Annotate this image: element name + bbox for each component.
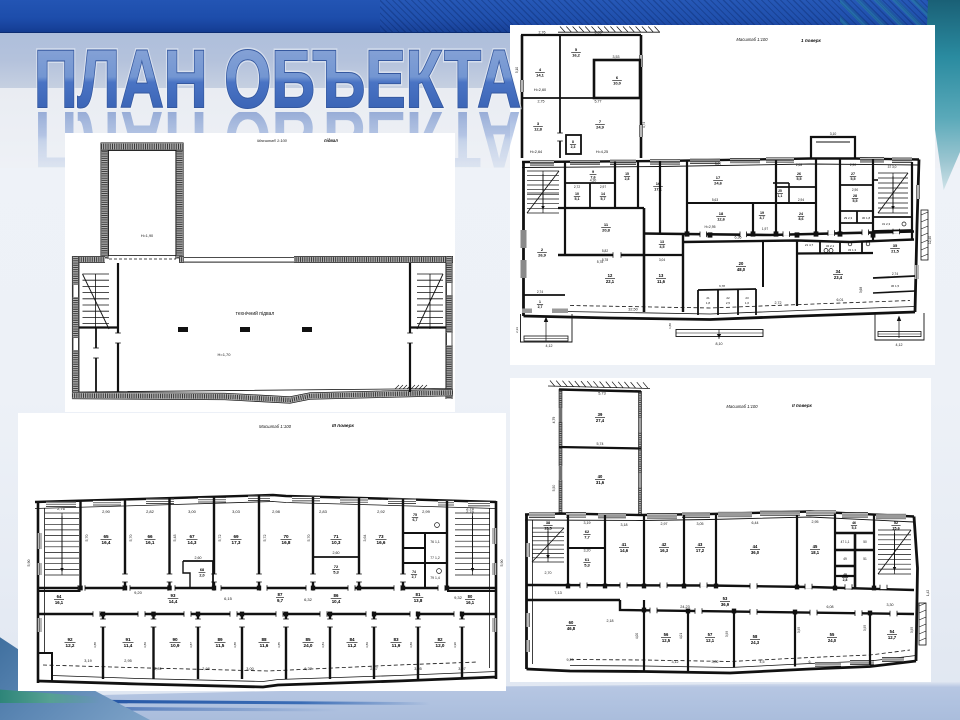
svg-text:3,07: 3,07 — [715, 162, 722, 166]
svg-text:24,0: 24,0 — [304, 643, 313, 648]
svg-text:2,82: 2,82 — [146, 509, 155, 514]
svg-text:12: 12 — [608, 273, 613, 278]
svg-text:45: 45 — [813, 544, 818, 549]
svg-text:15,6: 15,6 — [892, 526, 899, 530]
svg-text:53: 53 — [723, 596, 728, 601]
svg-text:5,5: 5,5 — [797, 177, 802, 181]
svg-text:2,60: 2,60 — [333, 551, 340, 555]
svg-text:4,5: 4,5 — [660, 245, 665, 249]
svg-text:Масштаб 1:100: Масштаб 1:100 — [257, 138, 288, 143]
svg-text:Н=1,90: Н=1,90 — [141, 234, 153, 238]
svg-text:2,8: 2,8 — [625, 177, 630, 181]
svg-text:4,01: 4,01 — [679, 633, 683, 639]
svg-text:13,8: 13,8 — [414, 598, 423, 603]
svg-text:12,5: 12,5 — [662, 638, 671, 643]
svg-text:6,44: 6,44 — [752, 521, 759, 525]
svg-text:11,4: 11,4 — [124, 643, 133, 648]
svg-text:5,70: 5,70 — [307, 535, 311, 542]
svg-text:9,32: 9,32 — [454, 595, 463, 600]
svg-text:36,9: 36,9 — [721, 602, 730, 607]
svg-text:3,85: 3,85 — [277, 642, 281, 648]
svg-text:2,0: 2,0 — [199, 573, 204, 577]
svg-text:21: 21 — [706, 296, 710, 300]
svg-text:83: 83 — [393, 637, 399, 642]
svg-text:12,40: 12,40 — [928, 236, 932, 244]
svg-text:3,00: 3,00 — [188, 509, 197, 514]
svg-text:6,36: 6,36 — [735, 236, 742, 240]
svg-text:3,12: 3,12 — [672, 660, 679, 664]
svg-text:36 1,5: 36 1,5 — [891, 284, 900, 288]
svg-text:72: 72 — [334, 564, 339, 569]
svg-text:51: 51 — [863, 557, 867, 561]
svg-text:14,3: 14,3 — [188, 540, 197, 545]
svg-text:13: 13 — [660, 240, 664, 244]
svg-text:22: 22 — [726, 296, 730, 300]
svg-text:3,99: 3,99 — [725, 631, 729, 637]
svg-text:74: 74 — [412, 570, 416, 574]
svg-text:4,5: 4,5 — [760, 660, 765, 664]
svg-text:5,73: 5,73 — [598, 392, 605, 396]
svg-text:57: 57 — [708, 632, 713, 637]
svg-text:2,70: 2,70 — [545, 571, 552, 575]
svg-text:91: 91 — [125, 637, 131, 642]
svg-text:1: 1 — [539, 300, 541, 304]
svg-text:3,88: 3,88 — [233, 642, 237, 648]
svg-text:16,1: 16,1 — [466, 600, 475, 605]
svg-text:24,9: 24,9 — [596, 125, 605, 130]
svg-text:1,8: 1,8 — [706, 301, 711, 305]
svg-text:48,0: 48,0 — [737, 267, 746, 272]
svg-text:81: 81 — [416, 592, 421, 597]
svg-text:48: 48 — [843, 573, 847, 577]
svg-text:54: 54 — [890, 629, 895, 634]
svg-text:12,7: 12,7 — [888, 635, 897, 640]
svg-text:4,12: 4,12 — [896, 343, 903, 347]
svg-text:4,7: 4,7 — [760, 216, 765, 220]
svg-text:3,87: 3,87 — [189, 642, 193, 648]
svg-text:23: 23 — [745, 296, 749, 300]
svg-text:3,64: 3,64 — [363, 535, 367, 542]
svg-text:89: 89 — [217, 637, 223, 642]
svg-text:24,6: 24,6 — [714, 181, 723, 186]
svg-text:32 2,1: 32 2,1 — [826, 244, 835, 248]
svg-text:23,4: 23,4 — [834, 275, 843, 280]
svg-text:2,7: 2,7 — [538, 305, 543, 309]
svg-text:68: 68 — [200, 568, 204, 572]
svg-text:24,3: 24,3 — [751, 640, 760, 645]
svg-text:технічний підвал: технічний підвал — [236, 310, 275, 317]
svg-text:3,02: 3,02 — [712, 660, 719, 664]
svg-text:2,95: 2,95 — [812, 520, 819, 524]
svg-text:5,1: 5,1 — [575, 197, 580, 201]
svg-text:3,95: 3,95 — [797, 627, 801, 633]
svg-text:52: 52 — [894, 521, 898, 525]
svg-text:18,1: 18,1 — [811, 550, 820, 555]
svg-text:37 3,0: 37 3,0 — [888, 165, 897, 169]
svg-text:85: 85 — [305, 637, 311, 642]
svg-text:2,74: 2,74 — [537, 290, 543, 294]
svg-text:46,8: 46,8 — [567, 626, 576, 631]
svg-text:2,68: 2,68 — [796, 163, 802, 167]
svg-text:2,8: 2,8 — [843, 578, 848, 582]
svg-text:5,90: 5,90 — [500, 560, 504, 567]
svg-text:17,3: 17,3 — [232, 540, 241, 545]
svg-text:2,92: 2,92 — [377, 509, 386, 514]
svg-text:3,90: 3,90 — [453, 642, 457, 648]
svg-text:80: 80 — [468, 594, 473, 599]
svg-text:40: 40 — [598, 474, 603, 479]
svg-text:3,00: 3,00 — [246, 667, 253, 671]
svg-text:69: 69 — [233, 534, 239, 539]
svg-text:2,97: 2,97 — [600, 185, 606, 189]
svg-text:17,2: 17,2 — [696, 548, 705, 553]
svg-text:3,95: 3,95 — [863, 625, 867, 631]
svg-text:42: 42 — [662, 542, 667, 547]
svg-text:17: 17 — [716, 175, 721, 180]
svg-text:3,20: 3,20 — [584, 549, 591, 553]
svg-text:3,89: 3,89 — [365, 642, 369, 648]
svg-text:39: 39 — [598, 412, 603, 417]
svg-text:12,6: 12,6 — [717, 217, 726, 222]
svg-text:9,23: 9,23 — [567, 658, 574, 662]
svg-text:35: 35 — [893, 243, 898, 248]
svg-text:3,30: 3,30 — [887, 603, 894, 607]
svg-text:17,1: 17,1 — [654, 187, 663, 192]
svg-text:38: 38 — [546, 521, 550, 525]
svg-text:2,33: 2,33 — [515, 327, 519, 333]
svg-text:36,0: 36,0 — [751, 550, 760, 555]
svg-text:8,10: 8,10 — [716, 342, 723, 346]
svg-text:43: 43 — [698, 542, 703, 547]
svg-text:62: 62 — [585, 529, 590, 534]
svg-text:1,80: 1,80 — [668, 323, 672, 329]
svg-text:16,2: 16,2 — [572, 53, 581, 58]
svg-text:84: 84 — [349, 637, 355, 642]
svg-text:5,83: 5,83 — [595, 31, 602, 35]
svg-text:56: 56 — [664, 632, 669, 637]
svg-text:5,70: 5,70 — [85, 535, 89, 542]
svg-text:16,1: 16,1 — [55, 600, 64, 605]
svg-text:III поверх: III поверх — [332, 423, 354, 429]
svg-text:3,89: 3,89 — [143, 642, 147, 648]
svg-text:1 поверх: 1 поверх — [801, 38, 821, 43]
svg-text:3,05: 3,05 — [414, 667, 421, 671]
svg-text:5,5: 5,5 — [853, 199, 858, 203]
svg-text:1,42: 1,42 — [926, 590, 930, 596]
svg-text:12,0: 12,0 — [436, 643, 445, 648]
svg-text:8: 8 — [572, 140, 574, 144]
svg-text:65: 65 — [103, 534, 109, 539]
svg-text:75: 75 — [413, 513, 417, 517]
svg-text:30 1,8: 30 1,8 — [862, 216, 871, 220]
svg-text:77 1,2: 77 1,2 — [430, 556, 440, 560]
svg-text:4,30: 4,30 — [590, 179, 597, 183]
svg-text:64: 64 — [57, 594, 62, 599]
svg-text:2,90: 2,90 — [852, 188, 858, 192]
svg-text:61: 61 — [585, 557, 590, 562]
svg-text:3,18: 3,18 — [621, 523, 628, 527]
svg-text:9,7: 9,7 — [277, 598, 284, 603]
svg-text:7: 7 — [599, 119, 602, 124]
svg-text:25: 25 — [778, 189, 782, 193]
svg-text:5: 5 — [575, 47, 578, 52]
svg-text:II поверх: II поверх — [792, 403, 812, 408]
svg-text:5,3: 5,3 — [584, 563, 590, 568]
svg-text:10,3: 10,3 — [332, 540, 341, 545]
svg-text:3,89: 3,89 — [409, 642, 413, 648]
svg-text:9: 9 — [592, 170, 594, 174]
svg-text:2,72: 2,72 — [775, 301, 782, 305]
svg-text:32,50: 32,50 — [628, 308, 638, 312]
svg-text:24,23: 24,23 — [680, 605, 690, 609]
svg-text:6: 6 — [616, 75, 619, 80]
svg-text:підвал: підвал — [324, 138, 338, 143]
svg-text:6,08: 6,08 — [827, 605, 834, 609]
svg-text:7,7: 7,7 — [584, 535, 590, 540]
svg-text:6,32: 6,32 — [304, 597, 313, 602]
svg-text:2,60: 2,60 — [195, 556, 202, 560]
svg-text:5,3: 5,3 — [333, 570, 339, 575]
svg-text:2,98: 2,98 — [202, 667, 209, 671]
svg-text:58: 58 — [753, 634, 758, 639]
svg-text:24: 24 — [799, 212, 803, 216]
svg-text:5,72: 5,72 — [263, 535, 267, 542]
svg-text:5,74: 5,74 — [597, 442, 604, 446]
svg-text:5,90: 5,90 — [27, 560, 31, 567]
svg-text:3,53: 3,53 — [613, 55, 620, 59]
svg-text:2,74: 2,74 — [892, 272, 898, 276]
svg-text:11,6: 11,6 — [260, 643, 269, 648]
svg-text:79 1,4: 79 1,4 — [430, 576, 440, 580]
svg-text:3,68: 3,68 — [859, 287, 863, 293]
svg-text:3,04: 3,04 — [659, 258, 665, 262]
svg-text:11,2: 11,2 — [348, 643, 357, 648]
svg-text:4,00: 4,00 — [635, 633, 639, 639]
svg-text:50: 50 — [863, 540, 867, 544]
svg-text:15,5: 15,5 — [544, 526, 551, 530]
svg-text:18: 18 — [719, 211, 724, 216]
svg-text:33 1,3: 33 1,3 — [848, 248, 857, 252]
svg-text:13: 13 — [659, 273, 664, 278]
svg-text:66: 66 — [147, 534, 153, 539]
svg-text:ПЛАН ОБЪЕКТА: ПЛАН ОБЪЕКТА — [34, 34, 521, 125]
svg-text:88: 88 — [261, 637, 267, 642]
svg-text:71: 71 — [333, 534, 339, 539]
svg-text:2,97: 2,97 — [661, 522, 668, 526]
svg-text:55: 55 — [830, 632, 835, 637]
svg-text:31,6: 31,6 — [596, 480, 605, 485]
svg-text:5,63: 5,63 — [712, 198, 718, 202]
svg-text:Масштаб 1:100: Масштаб 1:100 — [726, 404, 758, 409]
svg-text:21,5: 21,5 — [891, 249, 900, 254]
svg-text:12,1: 12,1 — [706, 638, 715, 643]
svg-text:2,18: 2,18 — [607, 619, 614, 623]
svg-text:3,19: 3,19 — [84, 659, 91, 663]
svg-text:3,03: 3,03 — [232, 509, 241, 514]
svg-text:76 1,1: 76 1,1 — [430, 540, 440, 544]
svg-text:Масштаб 1:100: Масштаб 1:100 — [736, 37, 768, 42]
svg-text:26,9: 26,9 — [538, 253, 547, 258]
svg-text:4,12: 4,12 — [546, 344, 553, 348]
svg-text:15: 15 — [625, 172, 629, 176]
svg-text:82: 82 — [437, 637, 443, 642]
svg-text:2,76: 2,76 — [57, 506, 66, 511]
svg-text:28: 28 — [853, 194, 857, 198]
svg-text:10: 10 — [575, 192, 579, 196]
svg-text:16,1: 16,1 — [146, 540, 155, 545]
svg-text:5,5: 5,5 — [851, 177, 856, 181]
svg-text:34: 34 — [836, 269, 841, 274]
svg-text:2,94: 2,94 — [798, 198, 804, 202]
svg-text:2,72: 2,72 — [574, 185, 580, 189]
svg-text:5,50: 5,50 — [552, 485, 556, 492]
svg-text:3,10: 3,10 — [830, 132, 837, 136]
svg-text:2,76: 2,76 — [466, 509, 475, 514]
svg-text:20: 20 — [739, 261, 744, 266]
svg-text:6,27: 6,27 — [304, 667, 311, 671]
svg-text:2,95: 2,95 — [124, 659, 131, 663]
svg-text:16,3: 16,3 — [660, 548, 669, 553]
svg-text:2,5: 2,5 — [726, 301, 731, 305]
svg-text:Н=4,25: Н=4,25 — [596, 150, 608, 154]
svg-text:6,78: 6,78 — [719, 284, 725, 288]
svg-text:14: 14 — [601, 192, 605, 196]
svg-text:1,97: 1,97 — [762, 227, 768, 231]
svg-text:5,3: 5,3 — [852, 526, 857, 530]
svg-text:1,1: 1,1 — [778, 194, 783, 198]
svg-text:2,98: 2,98 — [272, 509, 281, 514]
svg-text:93: 93 — [171, 593, 176, 598]
svg-text:5,48: 5,48 — [173, 535, 177, 542]
svg-text:3,05: 3,05 — [697, 522, 704, 526]
svg-text:16,8: 16,8 — [282, 540, 291, 545]
svg-text:11,6: 11,6 — [657, 279, 666, 284]
svg-text:24,0: 24,0 — [828, 638, 837, 643]
svg-text:70: 70 — [283, 534, 289, 539]
svg-text:1,6: 1,6 — [745, 301, 750, 305]
svg-text:Н=2,95: Н=2,95 — [704, 225, 715, 229]
svg-text:67: 67 — [189, 534, 195, 539]
svg-text:5,77: 5,77 — [595, 100, 602, 104]
svg-text:11,5: 11,5 — [216, 643, 225, 648]
svg-text:21 4,7: 21 4,7 — [805, 243, 814, 247]
svg-text:22,1: 22,1 — [606, 279, 615, 284]
svg-text:3,07: 3,07 — [458, 667, 465, 671]
svg-text:9,20: 9,20 — [134, 590, 143, 595]
svg-text:3,95: 3,95 — [910, 627, 914, 633]
svg-text:60: 60 — [569, 620, 574, 625]
svg-text:92: 92 — [67, 637, 73, 642]
svg-text:2,3: 2,3 — [571, 145, 576, 149]
svg-text:6,15: 6,15 — [224, 596, 233, 601]
svg-text:4,79: 4,79 — [552, 417, 556, 424]
svg-text:7,13: 7,13 — [554, 591, 561, 595]
svg-text:16: 16 — [656, 181, 661, 186]
svg-text:86: 86 — [334, 593, 339, 598]
svg-text:10,9: 10,9 — [171, 643, 180, 648]
svg-text:10,0: 10,0 — [613, 81, 622, 86]
svg-text:16,4: 16,4 — [102, 540, 111, 545]
svg-text:31 2,3: 31 2,3 — [882, 222, 891, 226]
svg-text:2,90: 2,90 — [102, 509, 111, 514]
svg-text:20,8: 20,8 — [602, 228, 611, 233]
svg-text:2,99: 2,99 — [422, 509, 431, 514]
svg-text:29 2,3: 29 2,3 — [844, 216, 853, 220]
svg-text:3,19: 3,19 — [584, 521, 591, 525]
svg-text:5,82: 5,82 — [602, 249, 608, 253]
svg-text:6,01: 6,01 — [837, 298, 844, 302]
svg-text:8,6: 8,6 — [799, 217, 804, 221]
svg-text:19: 19 — [760, 211, 764, 215]
svg-text:6,: 6, — [809, 660, 812, 664]
svg-text:27: 27 — [851, 172, 855, 176]
svg-text:16,6: 16,6 — [377, 540, 386, 545]
svg-text:46: 46 — [852, 521, 856, 525]
svg-text:5,72: 5,72 — [218, 535, 222, 542]
svg-text:49: 49 — [843, 557, 847, 561]
svg-text:14,6: 14,6 — [620, 548, 629, 553]
svg-text:90: 90 — [172, 637, 178, 642]
svg-text:Н=1,70: Н=1,70 — [217, 352, 231, 357]
svg-text:4,74: 4,74 — [642, 122, 646, 128]
svg-text:2,83: 2,83 — [319, 509, 328, 514]
svg-text:47 1,1: 47 1,1 — [841, 540, 850, 544]
svg-text:3,83: 3,83 — [321, 642, 325, 648]
svg-text:11,9: 11,9 — [392, 643, 401, 648]
svg-text:5,7: 5,7 — [601, 197, 606, 201]
svg-text:3,88: 3,88 — [93, 642, 97, 648]
svg-text:2,7: 2,7 — [412, 575, 417, 579]
svg-text:5,70: 5,70 — [129, 535, 133, 542]
svg-text:27,4: 27,4 — [596, 418, 605, 423]
svg-text:5,78: 5,78 — [597, 260, 604, 264]
svg-text:2,87: 2,87 — [370, 667, 377, 671]
svg-text:10,4: 10,4 — [332, 599, 341, 604]
svg-text:41: 41 — [622, 542, 627, 547]
svg-text:6,7: 6,7 — [413, 518, 418, 522]
svg-text:14,4: 14,4 — [169, 599, 178, 604]
svg-text:44: 44 — [753, 544, 758, 549]
svg-text:73: 73 — [378, 534, 384, 539]
svg-text:87: 87 — [278, 592, 283, 597]
svg-text:26: 26 — [797, 172, 801, 176]
svg-text:12,2: 12,2 — [66, 643, 75, 648]
svg-text:Масштаб 1:100: Масштаб 1:100 — [259, 424, 292, 429]
svg-text:2,90: 2,90 — [850, 163, 856, 167]
svg-text:2,81: 2,81 — [154, 667, 161, 671]
svg-text:11: 11 — [604, 222, 609, 227]
